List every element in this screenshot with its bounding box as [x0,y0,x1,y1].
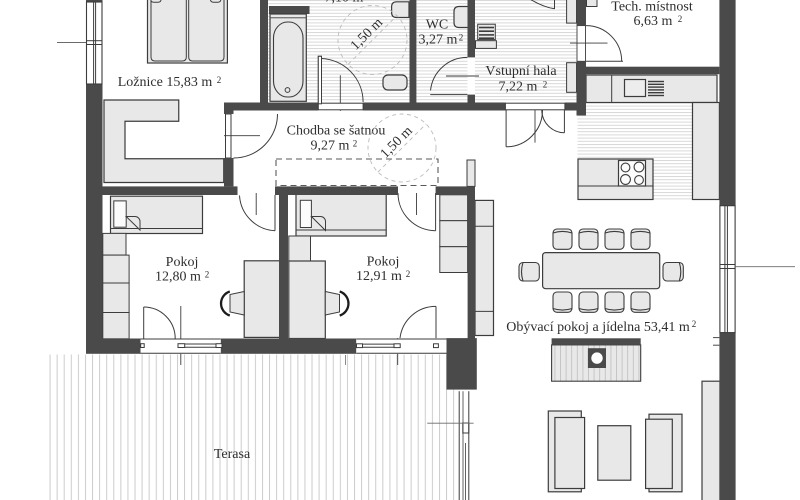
svg-text:12,80 m: 12,80 m [155,270,201,285]
svg-text:7,10 m: 7,10 m [325,0,364,6]
svg-text:Pokoj: Pokoj [166,255,199,270]
svg-text:2: 2 [678,14,683,24]
svg-text:Vstupní hala: Vstupní hala [485,64,557,79]
svg-text:2: 2 [459,33,464,43]
svg-text:Ložnice 15,83 m: Ložnice 15,83 m [118,75,213,90]
svg-text:6,63 m: 6,63 m [634,14,673,29]
svg-text:2: 2 [406,269,411,279]
svg-text:9,27 m: 9,27 m [311,139,350,154]
svg-text:7,22 m: 7,22 m [499,80,538,95]
svg-text:2: 2 [543,80,548,90]
svg-text:WC: WC [426,18,449,33]
svg-text:2: 2 [692,319,697,329]
svg-text:Obývací pokoj a jídelna 53,41: Obývací pokoj a jídelna 53,41 m [506,320,690,335]
svg-text:2: 2 [217,75,222,85]
svg-text:2: 2 [353,139,358,149]
svg-text:Terasa: Terasa [214,447,251,462]
svg-text:12,91 m: 12,91 m [356,269,402,284]
svg-text:Chodba se šatnou: Chodba se šatnou [287,124,386,139]
svg-text:Pokoj: Pokoj [367,255,400,270]
svg-text:Tech. místnost: Tech. místnost [611,0,693,15]
svg-text:3,27 m: 3,27 m [419,33,458,48]
svg-text:2: 2 [205,270,210,280]
